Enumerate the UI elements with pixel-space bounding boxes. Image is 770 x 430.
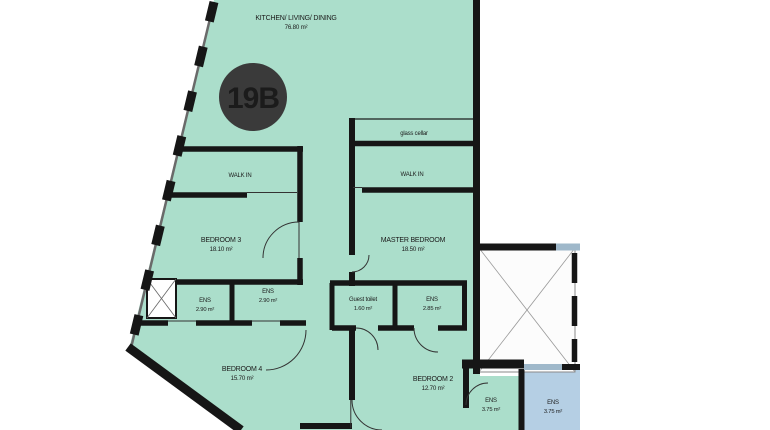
room-area-ens-right: 2.90 m² <box>259 298 278 304</box>
annotation-glass-cellar: glass cellar <box>400 131 428 137</box>
room-area-guest-toilet: 1.60 m² <box>354 306 373 312</box>
floor-plan-page: KITCHEN/ LIVING/ DINING 76.80 m² glass c… <box>0 0 770 430</box>
room-area-kitchen-living-dining: 76.80 m² <box>285 24 308 31</box>
duct-shaft <box>147 279 176 318</box>
room-label-ens-master: ENS <box>426 297 438 303</box>
room-area-bedroom-3: 18.10 m² <box>210 246 233 253</box>
room-label-walk-in-left: WALK IN <box>228 173 251 179</box>
room-area-ens-bedroom2: 3.75 m² <box>482 407 501 413</box>
room-label-guest-toilet: Guest toilet <box>349 297 377 303</box>
room-label-kitchen-living-dining: KITCHEN/ LIVING/ DINING <box>255 15 336 22</box>
room-label-ens-adjacent: ENS <box>547 400 559 406</box>
room-label-ens-right: ENS <box>262 289 274 295</box>
room-label-ens-left: ENS <box>199 298 211 304</box>
room-area-bedroom-4: 15.70 m² <box>231 375 254 382</box>
floor-plan: KITCHEN/ LIVING/ DINING 76.80 m² glass c… <box>0 0 770 430</box>
unit-badge: 19B <box>219 63 287 131</box>
room-label-bedroom-3: BEDROOM 3 <box>201 237 242 244</box>
room-label-master-bedroom: MASTER BEDROOM <box>381 237 446 244</box>
room-label-bedroom-4: BEDROOM 4 <box>222 366 263 373</box>
room-label-walk-in-right: WALK IN <box>400 172 423 178</box>
stair-shaft <box>479 248 575 372</box>
room-area-ens-master: 2.85 m² <box>423 306 442 312</box>
room-area-ens-left: 2.90 m² <box>196 307 215 313</box>
room-label-bedroom-2: BEDROOM 2 <box>413 376 454 383</box>
room-label-ens-bedroom2: ENS <box>485 398 497 404</box>
room-area-master-bedroom: 18.50 m² <box>402 246 425 253</box>
room-area-bedroom-2: 12.70 m² <box>422 385 445 392</box>
room-area-ens-adjacent: 3.75 m² <box>544 409 563 415</box>
unit-badge-label: 19B <box>227 82 279 115</box>
